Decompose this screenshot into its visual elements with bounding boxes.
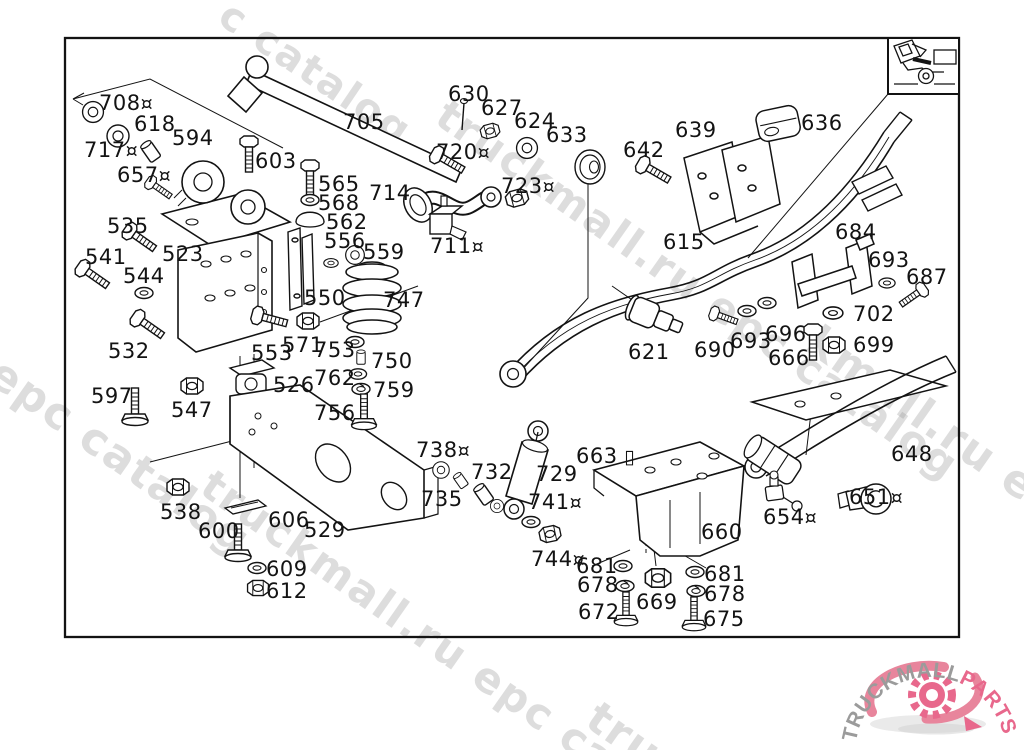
part-label-535[interactable]: 535 (107, 216, 149, 237)
part-label-672[interactable]: 672 (578, 602, 620, 623)
part-label-648[interactable]: 648 (891, 444, 933, 465)
part-label-732[interactable]: 732 (471, 462, 513, 483)
part-label-708[interactable]: 708¤ (99, 93, 153, 114)
part-label-651[interactable]: 651¤ (849, 487, 903, 508)
part-label-705[interactable]: 705 (343, 112, 385, 133)
part-label-696[interactable]: 696 (765, 324, 807, 345)
part-label-741[interactable]: 741¤ (528, 492, 582, 513)
part-label-639[interactable]: 639 (675, 120, 717, 141)
part-label-678[interactable]: 678 (704, 584, 746, 605)
part-label-529[interactable]: 529 (304, 520, 346, 541)
part-label-702[interactable]: 702 (853, 304, 895, 325)
part-label-532[interactable]: 532 (108, 341, 150, 362)
part-label-603[interactable]: 603 (255, 151, 297, 172)
part-label-762[interactable]: 762 (314, 368, 356, 389)
part-label-738[interactable]: 738¤ (416, 440, 470, 461)
part-label-666[interactable]: 666 (768, 348, 810, 369)
part-label-693[interactable]: 693 (868, 250, 910, 271)
part-label-699[interactable]: 699 (853, 335, 895, 356)
parts-diagram-page: c catalogtruckmall.ru epc catalogl epc c… (0, 0, 1024, 750)
part-label-723[interactable]: 723¤ (501, 176, 555, 197)
part-label-615[interactable]: 615 (663, 232, 705, 253)
part-label-747[interactable]: 747 (383, 290, 425, 311)
part-label-753[interactable]: 753 (314, 340, 356, 361)
part-label-759[interactable]: 759 (373, 380, 415, 401)
part-label-678[interactable]: 678 (577, 575, 619, 596)
part-label-714[interactable]: 714 (369, 183, 411, 204)
part-label-720[interactable]: 720¤ (436, 142, 490, 163)
part-label-538[interactable]: 538 (160, 502, 202, 523)
part-label-729[interactable]: 729 (536, 464, 578, 485)
part-label-600[interactable]: 600 (198, 521, 240, 542)
part-label-618[interactable]: 618 (134, 114, 176, 135)
part-label-621[interactable]: 621 (628, 342, 670, 363)
part-label-612[interactable]: 612 (266, 581, 308, 602)
part-label-654[interactable]: 654¤ (763, 507, 817, 528)
part-label-523[interactable]: 523 (162, 244, 204, 265)
part-label-544[interactable]: 544 (123, 266, 165, 287)
part-label-717[interactable]: 717¤ (84, 140, 138, 161)
part-label-633[interactable]: 633 (546, 125, 588, 146)
part-label-642[interactable]: 642 (623, 140, 665, 161)
part-label-675[interactable]: 675 (703, 609, 745, 630)
part-label-750[interactable]: 750 (371, 351, 413, 372)
part-label-636[interactable]: 636 (801, 113, 843, 134)
part-label-756[interactable]: 756 (314, 403, 356, 424)
part-label-597[interactable]: 597 (91, 386, 133, 407)
part-label-735[interactable]: 735 (421, 489, 463, 510)
part-label-711[interactable]: 711¤ (430, 236, 484, 257)
part-label-526[interactable]: 526 (273, 375, 315, 396)
part-label-657[interactable]: 657¤ (117, 165, 171, 186)
part-label-660[interactable]: 660 (701, 522, 743, 543)
part-label-609[interactable]: 609 (266, 559, 308, 580)
part-labels-layer: 708¤618717¤594657¤6035655685625565595507… (0, 0, 1024, 750)
part-label-550[interactable]: 550 (304, 288, 346, 309)
part-label-687[interactable]: 687 (906, 267, 948, 288)
part-label-547[interactable]: 547 (171, 400, 213, 421)
part-label-669[interactable]: 669 (636, 592, 678, 613)
part-label-556[interactable]: 556 (324, 231, 366, 252)
part-label-684[interactable]: 684 (835, 222, 877, 243)
part-label-541[interactable]: 541 (85, 247, 127, 268)
part-label-663[interactable]: 663 ▯ (576, 446, 635, 467)
part-label-559[interactable]: 559 (363, 242, 405, 263)
part-label-594[interactable]: 594 (172, 128, 214, 149)
